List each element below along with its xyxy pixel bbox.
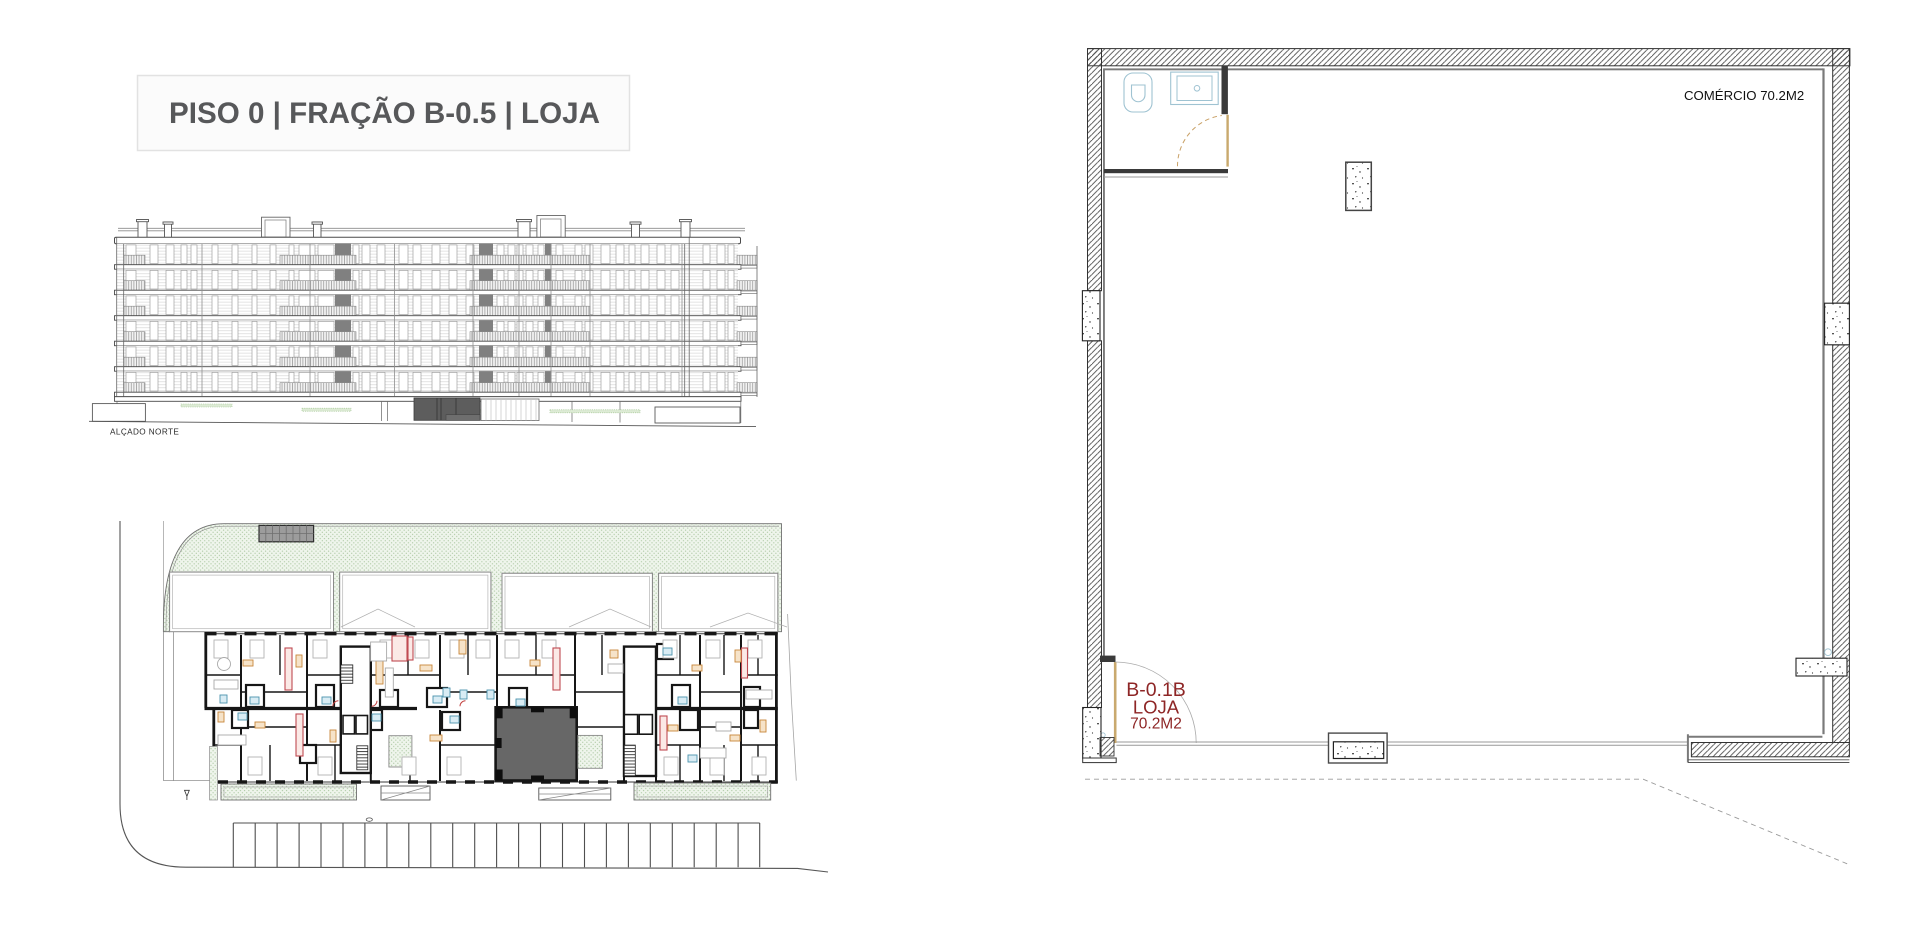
svg-text:COMÉRCIO 70.2M2: COMÉRCIO 70.2M2 bbox=[1684, 88, 1804, 103]
svg-text:70.2M2: 70.2M2 bbox=[1130, 716, 1182, 733]
svg-text:PISO 0 | FRAÇÃO B-0.5 | LOJA: PISO 0 | FRAÇÃO B-0.5 | LOJA bbox=[169, 96, 600, 130]
svg-text:ALÇADO NORTE: ALÇADO NORTE bbox=[110, 428, 179, 437]
svg-text:LOJA: LOJA bbox=[1133, 697, 1180, 718]
